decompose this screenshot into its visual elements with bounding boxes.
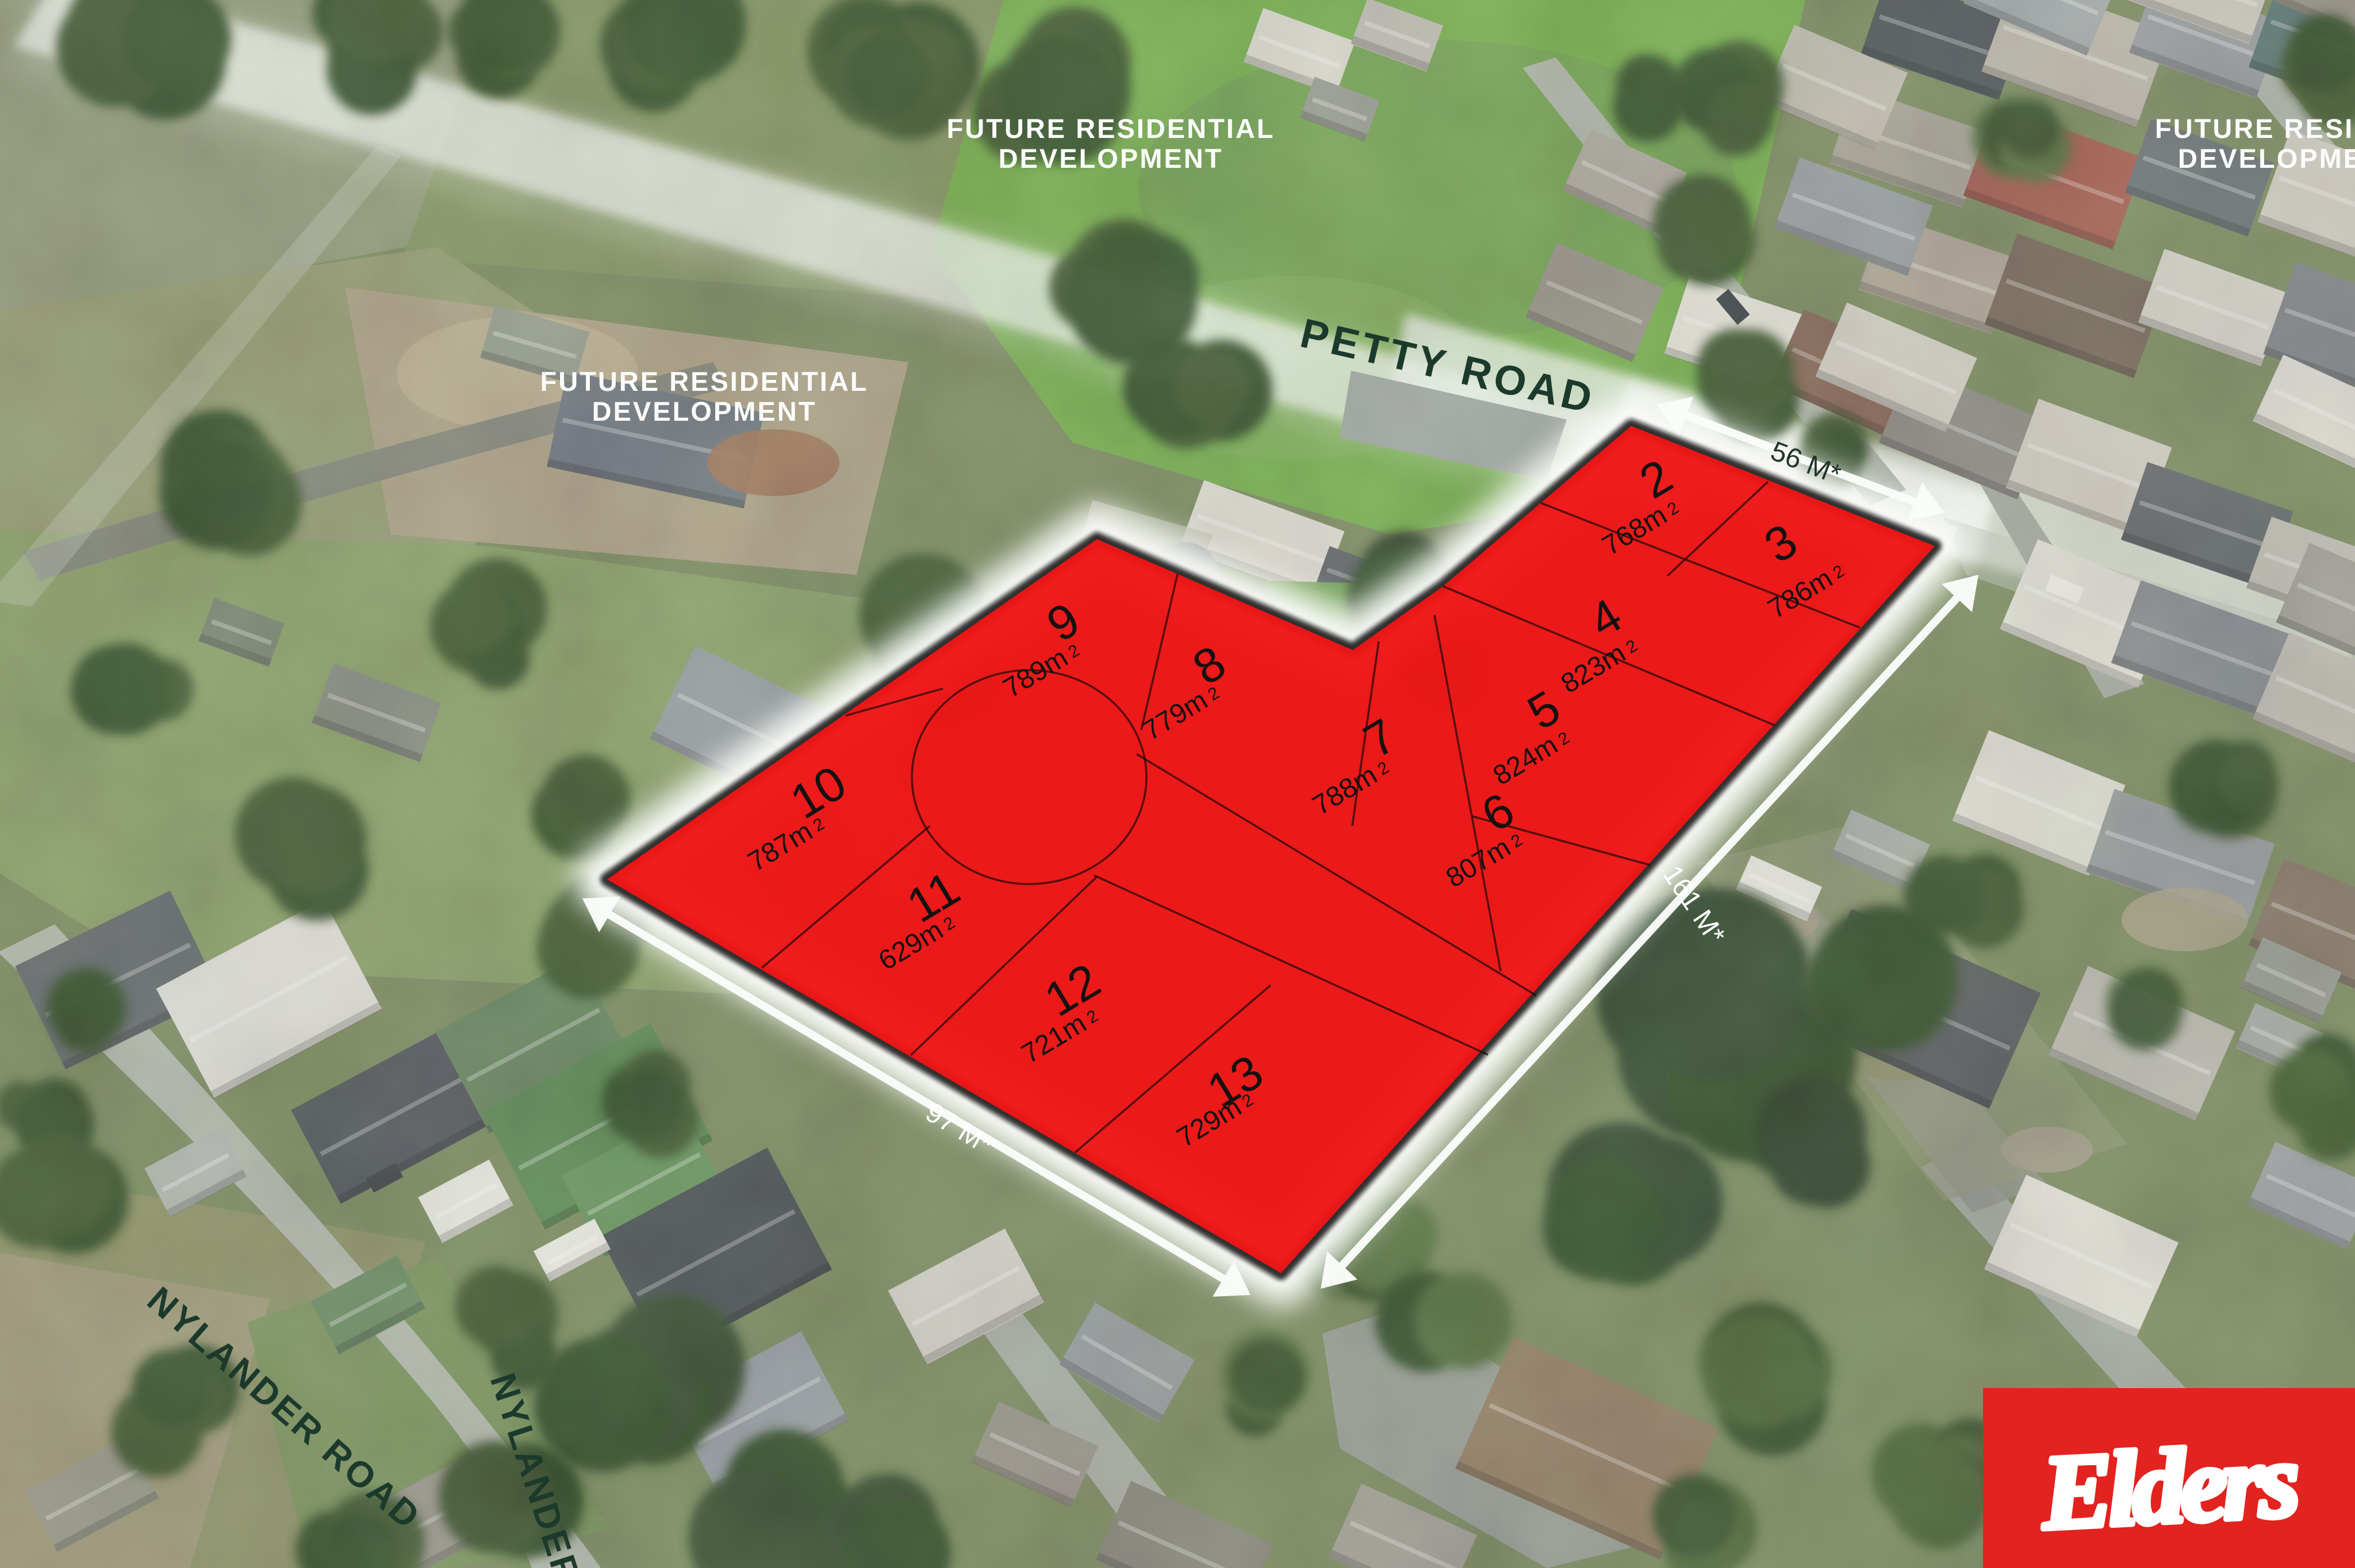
svg-text:DEVELOPMENT: DEVELOPMENT [592,396,817,426]
svg-text:FUTURE RESIDENTIAL: FUTURE RESIDENTIAL [540,366,869,397]
svg-text:FUTURE RESIDENTIAL: FUTURE RESIDENTIAL [2155,113,2355,144]
svg-text:DEVELOPMENT: DEVELOPMENT [999,143,1223,174]
svg-text:DEVELOPMENT: DEVELOPMENT [2178,143,2355,174]
svg-text:Elders: Elders [2038,1421,2300,1552]
svg-text:FUTURE RESIDENTIAL: FUTURE RESIDENTIAL [947,113,1275,144]
